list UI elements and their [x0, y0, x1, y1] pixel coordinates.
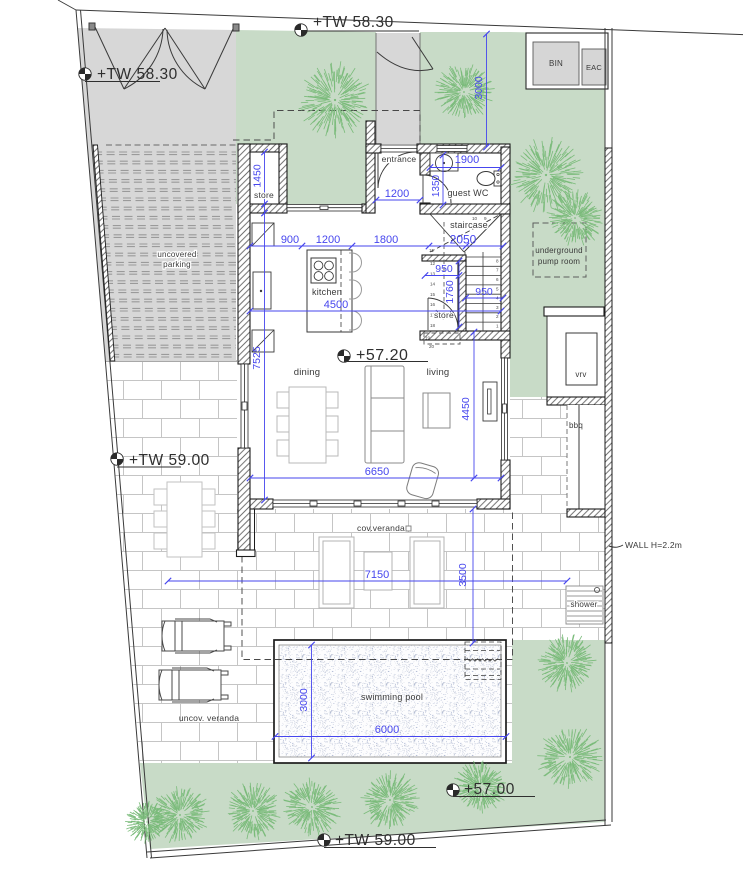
- svg-text:20: 20: [429, 344, 435, 349]
- svg-text:950: 950: [435, 263, 453, 275]
- svg-text:7150: 7150: [365, 569, 389, 581]
- svg-text:19: 19: [425, 336, 431, 341]
- svg-text:dining: dining: [294, 367, 321, 378]
- svg-text:living: living: [427, 367, 450, 378]
- svg-text:16: 16: [430, 302, 436, 307]
- svg-text:BIN: BIN: [549, 59, 563, 68]
- svg-text:uncovered: uncovered: [157, 250, 196, 259]
- svg-text:parking: parking: [163, 260, 191, 269]
- svg-text:3000: 3000: [298, 688, 310, 712]
- svg-text:14: 14: [430, 282, 436, 287]
- svg-text:EAC: EAC: [586, 63, 602, 72]
- svg-text:2050: 2050: [450, 233, 477, 247]
- svg-text:15: 15: [430, 292, 436, 297]
- svg-text:8: 8: [496, 258, 499, 263]
- svg-text:7525: 7525: [251, 346, 263, 370]
- svg-text:entrance: entrance: [382, 154, 417, 164]
- svg-text:pump room: pump room: [538, 257, 580, 266]
- svg-text:+TW 59.00: +TW 59.00: [335, 832, 416, 849]
- svg-text:store: store: [254, 190, 274, 200]
- svg-text:+TW 58.30: +TW 58.30: [313, 14, 394, 31]
- svg-text:6650: 6650: [365, 466, 389, 478]
- svg-text:6: 6: [496, 277, 499, 282]
- svg-text:bbq: bbq: [569, 421, 583, 430]
- svg-text:1200: 1200: [385, 188, 409, 200]
- svg-text:18: 18: [430, 323, 436, 328]
- svg-text:1900: 1900: [455, 154, 479, 166]
- svg-text:5: 5: [496, 286, 499, 291]
- svg-text:1200: 1200: [316, 234, 340, 246]
- svg-text:underground: underground: [535, 246, 583, 255]
- svg-text:1350: 1350: [431, 174, 442, 197]
- svg-text:6000: 6000: [375, 724, 399, 736]
- svg-text:4450: 4450: [460, 397, 472, 421]
- svg-text:shower: shower: [571, 600, 598, 609]
- svg-text:staircase: staircase: [450, 220, 488, 230]
- svg-text:11: 11: [429, 248, 434, 253]
- svg-text:2: 2: [496, 314, 499, 319]
- svg-text:1800: 1800: [374, 234, 398, 246]
- svg-text:3000: 3000: [473, 76, 485, 100]
- svg-text:3500: 3500: [457, 563, 469, 587]
- svg-text:3: 3: [496, 305, 499, 310]
- svg-text:1450: 1450: [252, 164, 264, 188]
- svg-text:WALL H=2.2m: WALL H=2.2m: [625, 540, 682, 550]
- svg-text:store: store: [434, 310, 454, 320]
- svg-text:+57.00: +57.00: [464, 781, 515, 798]
- svg-text:900: 900: [281, 234, 299, 246]
- svg-text:1760: 1760: [444, 280, 456, 304]
- svg-text:swimming pool: swimming pool: [361, 692, 423, 702]
- svg-text:950: 950: [475, 286, 493, 298]
- svg-text:+TW 59.00: +TW 59.00: [129, 452, 210, 469]
- svg-text:1: 1: [496, 324, 499, 329]
- svg-text:7: 7: [496, 268, 499, 273]
- svg-text:+TW 58.30: +TW 58.30: [97, 66, 178, 83]
- svg-text:vrv: vrv: [575, 370, 586, 379]
- svg-text:uncov. veranda: uncov. veranda: [179, 713, 239, 723]
- svg-text:kitchen: kitchen: [312, 287, 342, 297]
- svg-text:guest WC: guest WC: [447, 188, 488, 198]
- svg-text:4500: 4500: [324, 299, 348, 311]
- svg-text:cov.veranda: cov.veranda: [357, 523, 405, 533]
